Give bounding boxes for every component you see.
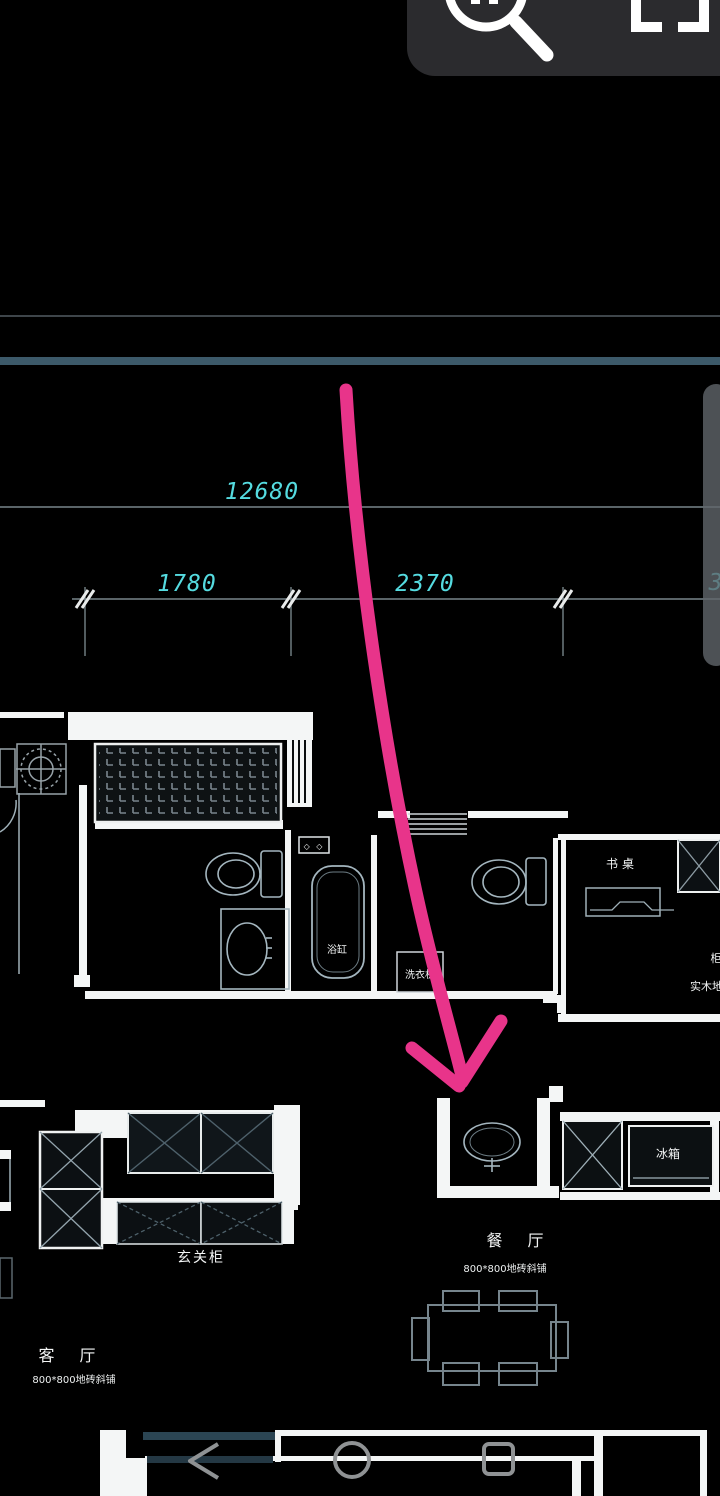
- hatched-closet: [95, 744, 281, 822]
- floor-plan-canvas[interactable]: 12680 1780 2370 3: [0, 0, 720, 1496]
- living-room-label: 客 厅: [38, 1346, 105, 1365]
- dim-seg2: 2370: [395, 571, 454, 597]
- floor-note-partial: 实木地板: [690, 979, 720, 993]
- bathtub-symbol: ◇ ◇ 浴缸: [299, 837, 364, 978]
- washing-machine-symbol: [0, 744, 66, 794]
- toilet-symbol-2: [472, 858, 546, 905]
- fridge-label: 冰箱: [656, 1146, 680, 1161]
- dining-room-note: 800*800地砖斜铺: [463, 1262, 546, 1275]
- upper-wall-lines: [0, 315, 720, 365]
- entry-cabinets: 玄关柜: [40, 1113, 282, 1266]
- desk-area: 书桌 柜 实木地板: [586, 840, 720, 993]
- entry-cabinet-label: 玄关柜: [177, 1249, 225, 1266]
- dining-room-label: 餐 厅: [486, 1231, 553, 1250]
- wardrobe-partial-label: 柜: [711, 952, 720, 965]
- left-door-detail: [0, 793, 19, 1298]
- cabinet-fridge: 冰箱: [563, 1121, 713, 1189]
- zoom-magnifier-icon[interactable]: [449, 0, 547, 55]
- phone-screen: 12680 1780 2370 3: [0, 0, 720, 1496]
- louver-window: [408, 814, 467, 834]
- basin-symbol-1: [221, 909, 289, 989]
- top-toolbar: [407, 0, 720, 76]
- toilet-symbol-1: [206, 851, 282, 897]
- living-room-note: 800*800地砖斜铺: [32, 1373, 115, 1386]
- dining-table-set: [412, 1291, 568, 1385]
- sink-symbol: [464, 1123, 520, 1172]
- crop-frame-icon[interactable]: [636, 0, 704, 27]
- desk-label: 书桌: [606, 857, 638, 871]
- diamond-marks: ◇ ◇: [304, 842, 325, 851]
- bathtub-label: 浴缸: [327, 943, 347, 956]
- dim-total: 12680: [225, 479, 299, 505]
- scrollbar-thumb[interactable]: [703, 384, 720, 666]
- dim-seg1: 1780: [157, 571, 216, 597]
